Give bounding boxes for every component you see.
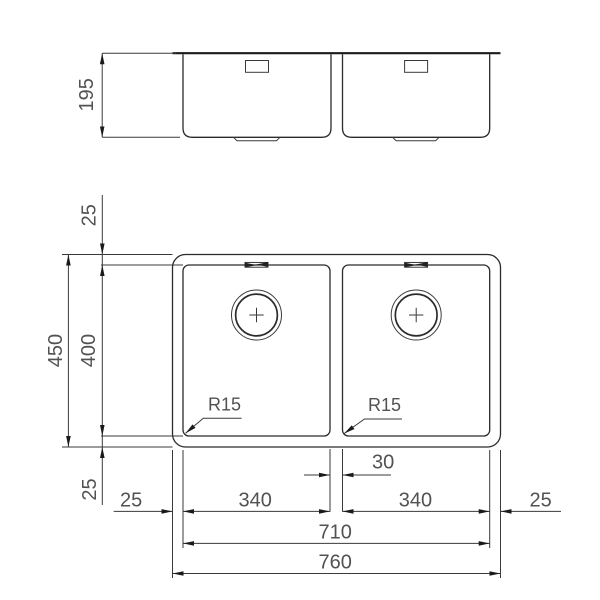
svg-text:25: 25 (79, 204, 101, 226)
svg-text:340: 340 (399, 489, 432, 511)
svg-text:R15: R15 (208, 395, 241, 415)
svg-text:25: 25 (120, 489, 142, 511)
svg-text:450: 450 (45, 334, 67, 367)
svg-text:25: 25 (79, 478, 101, 500)
svg-text:710: 710 (319, 522, 352, 544)
svg-text:340: 340 (239, 489, 272, 511)
svg-text:760: 760 (319, 552, 352, 574)
svg-text:R15: R15 (368, 395, 401, 415)
svg-text:30: 30 (372, 452, 394, 474)
svg-text:195: 195 (76, 78, 98, 111)
svg-text:25: 25 (530, 490, 552, 512)
svg-text:400: 400 (78, 334, 100, 367)
